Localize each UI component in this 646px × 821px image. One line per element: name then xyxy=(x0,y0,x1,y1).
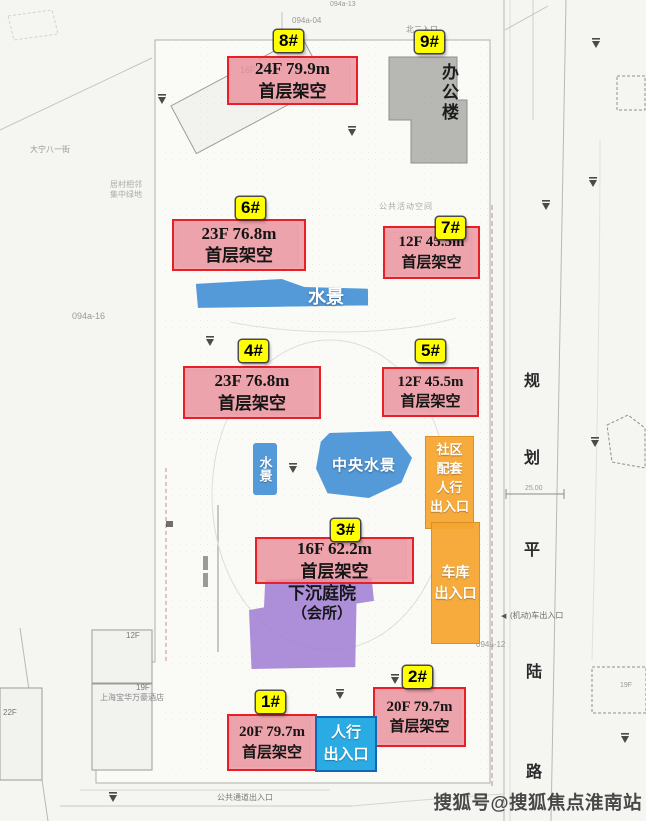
sunken-courtyard-label: 下沉庭院 （会所） xyxy=(279,583,365,624)
tower-spec-line: 23F 76.8m xyxy=(202,223,277,245)
tower-6-spec-box: 23F 76.8m 首层架空 xyxy=(172,219,306,271)
tower-spec-line: 首层架空 xyxy=(389,717,449,737)
road-name-char: 平 xyxy=(524,536,540,560)
tower-spec-line: 首层架空 xyxy=(301,561,369,583)
pedestrian-entrance-line: 出入口 xyxy=(323,744,368,766)
road-name-char: 划 xyxy=(524,444,540,468)
garage-entrance-line: 出入口 xyxy=(432,583,479,604)
greenbelt-label-2: 集中绿地 xyxy=(110,191,142,200)
tower-7-badge: 7# xyxy=(436,217,465,239)
central-water-label: 中央水景 xyxy=(332,454,396,475)
arrow-left-icon: ◀ xyxy=(501,612,506,620)
plan-code-094a-12: 094a-12 xyxy=(476,641,505,650)
tower-1-badge: 1# xyxy=(256,691,285,713)
community-pedestrian-entrance-label: 社区 配套 人行 出入口 xyxy=(425,436,474,529)
sunken-courtyard: 下沉庭院 （会所） xyxy=(249,577,374,669)
tower-2-badge: 2# xyxy=(403,666,432,688)
tower-spec-line: 首层架空 xyxy=(400,392,460,412)
community-entrance-line: 社区 xyxy=(426,441,473,460)
site-plan: 094a-13 094a-04 北二入口 公共活动空间 094a-16 094a… xyxy=(0,0,646,821)
tower-spec-line: 23F 76.8m xyxy=(215,370,290,392)
tower-spec-line: 20F 79.7m xyxy=(386,697,452,717)
tower-4-badge: 4# xyxy=(239,340,268,362)
tower-8-badge: 8# xyxy=(274,30,303,52)
road-name-char: 陆 xyxy=(526,658,542,682)
pedestrian-entrance-label: 人行 出入口 xyxy=(315,716,377,772)
road-name-char: 规 xyxy=(524,367,540,391)
tower-8-spec-box: 24F 79.9m 首层架空 xyxy=(227,56,358,105)
sunken-courtyard-line1: 下沉庭院 xyxy=(279,583,365,604)
plan-code-094a-16: 094a-16 xyxy=(72,312,105,322)
tower-spec-line: 16F 62.2m xyxy=(297,538,372,560)
tower-spec-line: 首层架空 xyxy=(205,245,273,267)
watermark: 搜狐号@搜狐焦点淮南站 xyxy=(433,789,642,815)
tower-7-spec-box: 12F 45.5m 首层架空 xyxy=(383,226,480,279)
community-entrance-line: 出入口 xyxy=(426,498,473,517)
tower-3-spec-box: 16F 62.2m 首层架空 xyxy=(255,537,414,584)
tower-4-spec-box: 23F 76.8m 首层架空 xyxy=(183,366,321,419)
water-band-label: 水景 xyxy=(308,283,344,309)
public-passage-label: 公共通道出入口 xyxy=(217,794,273,803)
garage-entrance-line: 车库 xyxy=(432,562,479,583)
floors-22f-label: 22F xyxy=(3,709,17,718)
tower-3-badge: 3# xyxy=(331,519,360,541)
road-name-char: 路 xyxy=(526,758,542,782)
hotel-label: 上海宝华万豪酒店 xyxy=(100,694,164,703)
tower-2-spec-box: 20F 79.7m 首层架空 xyxy=(373,687,466,747)
tower-spec-line: 首层架空 xyxy=(401,253,461,273)
water-feature-band: 水景 xyxy=(196,279,368,307)
tower-spec-line: 首层架空 xyxy=(242,743,302,763)
public-activity-space-label: 公共活动空间 xyxy=(379,203,433,212)
site-plan-drawing xyxy=(0,0,646,821)
floors-12f-label: 12F xyxy=(126,632,140,641)
plan-code-094a-04: 094a-04 xyxy=(292,17,321,26)
tower-1-spec-box: 20F 79.7m 首层架空 xyxy=(227,714,317,771)
tower-spec-line: 首层架空 xyxy=(259,81,327,103)
community-entrance-line: 人行 xyxy=(426,479,473,498)
tower-spec-line: 20F 79.7m xyxy=(239,722,305,742)
tower-9-badge: 9# xyxy=(415,31,444,53)
tower-5-badge: 5# xyxy=(416,340,445,362)
tower-5-spec-box: 12F 45.5m 首层架空 xyxy=(382,367,479,417)
community-entrance-line: 配套 xyxy=(426,460,473,479)
dimension-label: 25.00 xyxy=(525,485,543,493)
tower-6-badge: 6# xyxy=(236,197,265,219)
sunken-courtyard-line2: （会所） xyxy=(279,604,365,624)
floors-19f-label: 19F xyxy=(136,684,150,693)
vehicle-exit-label: (机动)车出入口 xyxy=(510,612,563,621)
tower-spec-line: 12F 45.5m xyxy=(397,372,463,392)
greenbelt-label-1: 居村相邻 xyxy=(110,181,142,190)
office-building-label: 办公楼 xyxy=(436,63,461,123)
small-water-feature: 水景 xyxy=(253,443,277,495)
tower-spec-line: 首层架空 xyxy=(218,393,286,415)
pedestrian-entrance-line: 人行 xyxy=(331,722,361,744)
plan-code-top: 094a-13 xyxy=(330,1,356,9)
floors-19f-right-label: 19F xyxy=(620,682,632,690)
small-water-label: 水景 xyxy=(256,456,275,482)
tower-spec-line: 24F 79.9m xyxy=(255,58,330,80)
street-label: 大宁八一街 xyxy=(30,146,70,155)
garage-entrance-label: 车库 出入口 xyxy=(431,522,480,644)
